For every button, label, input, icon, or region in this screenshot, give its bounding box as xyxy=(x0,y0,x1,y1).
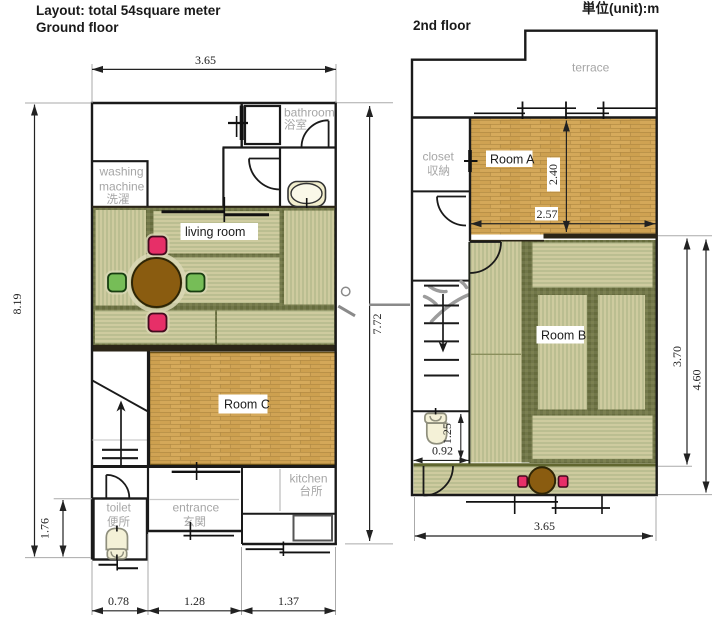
svg-text:terrace: terrace xyxy=(572,61,610,75)
svg-text:1.76: 1.76 xyxy=(38,518,52,539)
svg-text:3.65: 3.65 xyxy=(534,519,555,533)
svg-text:0.92: 0.92 xyxy=(432,444,453,458)
svg-text:1.37: 1.37 xyxy=(278,594,299,608)
svg-text:2nd floor: 2nd floor xyxy=(413,18,471,33)
svg-text:0.78: 0.78 xyxy=(108,594,129,608)
svg-text:便所: 便所 xyxy=(107,516,130,529)
svg-text:Room B: Room B xyxy=(541,329,586,343)
svg-text:kitchen: kitchen xyxy=(290,472,328,486)
svg-text:1.25: 1.25 xyxy=(440,423,454,444)
svg-text:Ground floor: Ground floor xyxy=(36,20,119,35)
svg-text:living room: living room xyxy=(185,225,245,239)
svg-text:収納: 収納 xyxy=(427,165,450,178)
svg-text:3.70: 3.70 xyxy=(670,346,684,367)
svg-text:1.28: 1.28 xyxy=(184,594,205,608)
svg-text:台所: 台所 xyxy=(300,484,323,498)
svg-text:洗濯: 洗濯 xyxy=(107,193,130,206)
svg-text:machine: machine xyxy=(99,180,145,194)
svg-text:2.57: 2.57 xyxy=(537,207,558,221)
svg-text:Room A: Room A xyxy=(490,153,535,167)
svg-text:bathroom: bathroom xyxy=(284,106,335,120)
svg-text:玄関: 玄関 xyxy=(183,515,206,529)
svg-text:2.40: 2.40 xyxy=(546,164,560,185)
svg-text:Room C: Room C xyxy=(224,398,270,412)
svg-text:8.19: 8.19 xyxy=(10,294,24,315)
svg-text:3.65: 3.65 xyxy=(195,53,216,67)
svg-text:浴室: 浴室 xyxy=(284,118,307,132)
svg-text:7.72: 7.72 xyxy=(370,314,384,335)
svg-text:entrance: entrance xyxy=(173,501,220,515)
svg-text:washing: washing xyxy=(99,165,144,179)
svg-text:Layout: total 54square meter: Layout: total 54square meter xyxy=(36,3,221,18)
svg-text:closet: closet xyxy=(423,150,455,164)
svg-text:toilet: toilet xyxy=(107,503,132,515)
svg-text:単位(unit):m: 単位(unit):m xyxy=(582,0,659,16)
svg-text:4.60: 4.60 xyxy=(690,370,704,391)
